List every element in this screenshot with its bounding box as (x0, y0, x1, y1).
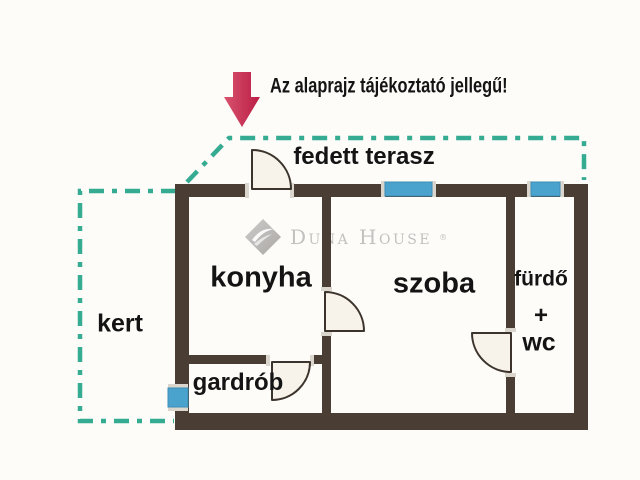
door-jamb (245, 183, 249, 198)
walls-layer (0, 0, 640, 480)
door-arc-kitchen-wardrobe (272, 362, 310, 400)
wall-right (574, 184, 588, 430)
window-jamb (527, 181, 531, 197)
door-arc-entrance (252, 150, 291, 189)
door-jamb (266, 355, 270, 366)
window-bathroom-top (531, 182, 560, 196)
door-jamb (505, 373, 516, 377)
window-room-top (385, 182, 432, 196)
door-jamb (321, 287, 332, 291)
door-arc-room-bathroom (472, 333, 511, 372)
window-jamb (168, 407, 188, 411)
door-jamb (505, 328, 516, 332)
window-jamb (381, 181, 385, 197)
window-wardrobe-left (168, 388, 188, 407)
wall-bottom (175, 413, 588, 430)
window-jamb (560, 181, 564, 197)
door-arc-kitchen-room (325, 292, 364, 331)
door-jamb (321, 332, 332, 336)
wall-room-bathroom (506, 197, 515, 413)
down-arrow-icon (224, 72, 260, 127)
window-jamb (168, 384, 188, 388)
window-jamb (432, 181, 436, 197)
floorplan: Duna House® (0, 0, 640, 480)
